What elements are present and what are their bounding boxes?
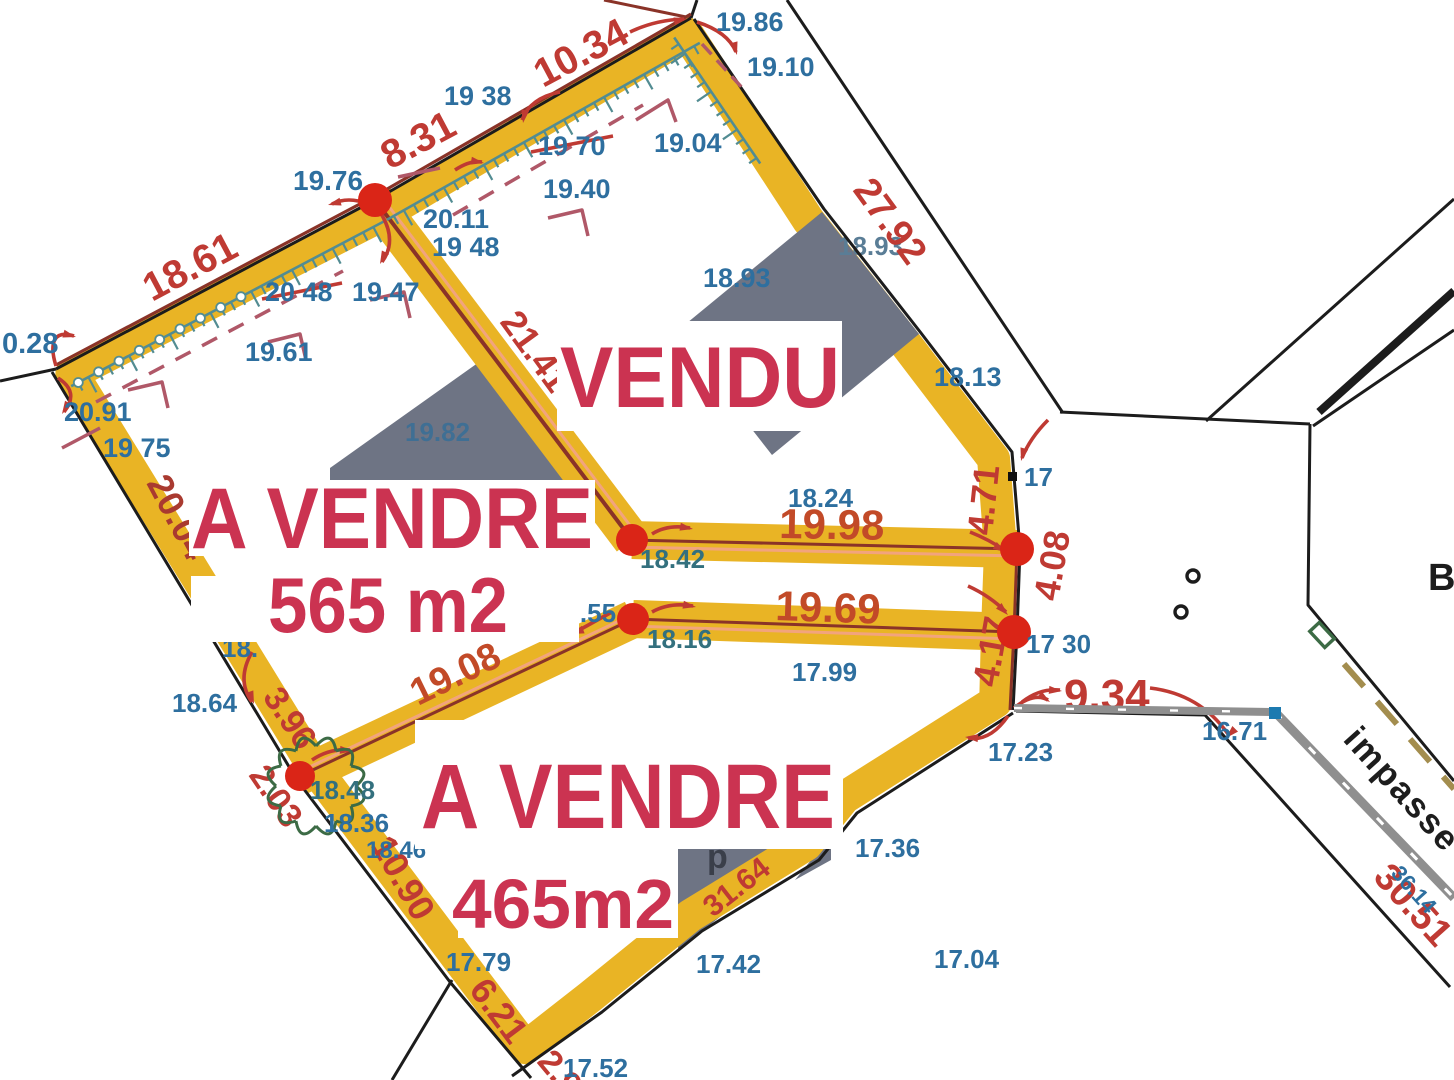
svg-text:17.36: 17.36 xyxy=(855,833,920,863)
svg-text:19 38: 19 38 xyxy=(444,81,512,111)
svg-text:0.28: 0.28 xyxy=(2,328,58,360)
svg-text:A VENDRE: A VENDRE xyxy=(421,746,835,848)
svg-text:18.93: 18.93 xyxy=(703,263,771,293)
svg-text:20.11: 20.11 xyxy=(423,204,489,234)
svg-text:19.40: 19.40 xyxy=(543,174,611,204)
svg-text:19 70: 19 70 xyxy=(538,131,606,161)
svg-text:19.76: 19.76 xyxy=(293,165,363,196)
svg-text:19.47: 19.47 xyxy=(352,277,420,307)
svg-text:19.04: 19.04 xyxy=(654,128,722,158)
svg-text:16.71: 16.71 xyxy=(1202,716,1267,746)
svg-text:19.86: 19.86 xyxy=(716,7,784,37)
svg-text:19.61: 19.61 xyxy=(245,337,313,367)
svg-text:20 48: 20 48 xyxy=(265,277,333,307)
svg-text:20.91: 20.91 xyxy=(64,397,132,427)
svg-text:17.99: 17.99 xyxy=(792,657,857,687)
svg-text:17: 17 xyxy=(1024,462,1053,492)
svg-text:18.48: 18.48 xyxy=(310,775,375,805)
svg-text:17.42: 17.42 xyxy=(696,949,761,979)
svg-text:18.36: 18.36 xyxy=(324,808,389,838)
svg-text:19.10: 19.10 xyxy=(747,52,815,82)
svg-text:18.13: 18.13 xyxy=(934,362,1002,392)
svg-text:17 30: 17 30 xyxy=(1026,629,1091,659)
svg-text:18.64: 18.64 xyxy=(172,688,238,718)
svg-text:19 75: 19 75 xyxy=(103,433,171,463)
svg-text:19 48: 19 48 xyxy=(432,232,500,262)
svg-text:19.69: 19.69 xyxy=(775,582,882,633)
svg-text:17.23: 17.23 xyxy=(988,737,1053,767)
svg-text:B: B xyxy=(1428,557,1454,599)
svg-text:18.16: 18.16 xyxy=(647,624,712,654)
svg-text:17.04: 17.04 xyxy=(934,944,1000,974)
svg-text:17.79: 17.79 xyxy=(446,947,511,977)
svg-text:19.82: 19.82 xyxy=(405,417,470,447)
svg-text:17.52: 17.52 xyxy=(563,1053,628,1080)
svg-text:4.71: 4.71 xyxy=(959,463,1007,537)
svg-text:18.42: 18.42 xyxy=(640,544,705,574)
svg-text:VENDU: VENDU xyxy=(560,330,840,426)
svg-text:18.24: 18.24 xyxy=(788,483,854,513)
svg-text:465m2: 465m2 xyxy=(452,865,674,943)
svg-text:565 m2: 565 m2 xyxy=(268,561,508,649)
svg-text:A VENDRE: A VENDRE xyxy=(191,471,593,567)
